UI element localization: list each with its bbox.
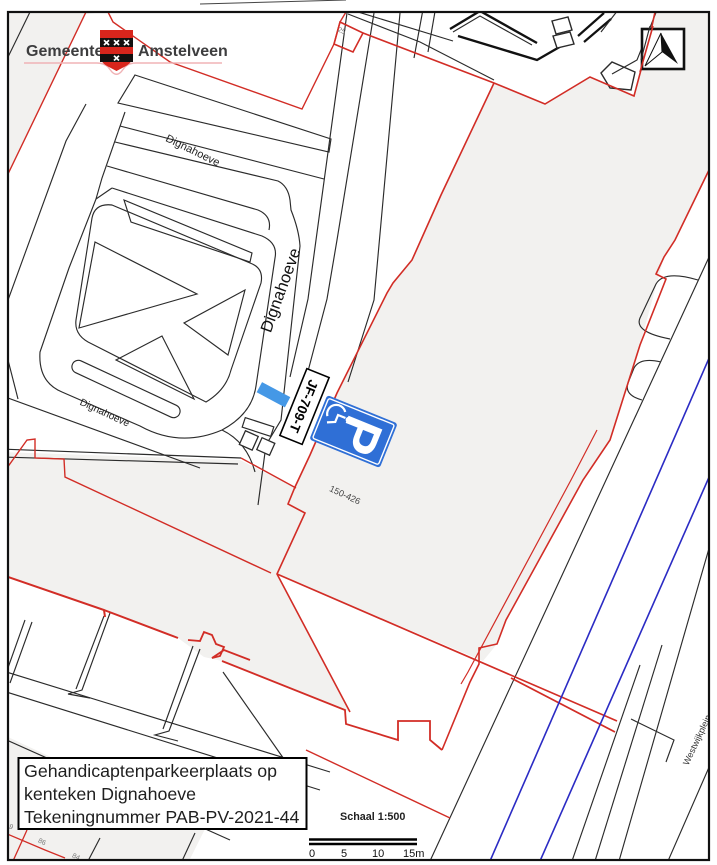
svg-text:Gehandicaptenparkeerplaats op: Gehandicaptenparkeerplaats op <box>24 761 277 781</box>
svg-text:0: 0 <box>309 848 315 860</box>
svg-text:Schaal 1:500: Schaal 1:500 <box>340 811 405 823</box>
svg-text:10: 10 <box>372 848 384 860</box>
svg-text:Gemeente: Gemeente <box>26 43 103 60</box>
svg-text:Tekeningnummer PAB-PV-2021-44: Tekeningnummer PAB-PV-2021-44 <box>24 807 300 827</box>
svg-text:Amstelveen: Amstelveen <box>138 43 228 60</box>
svg-text:kenteken Dignahoeve: kenteken Dignahoeve <box>24 784 196 804</box>
svg-text:5: 5 <box>341 848 347 860</box>
svg-text:15m: 15m <box>403 848 424 860</box>
